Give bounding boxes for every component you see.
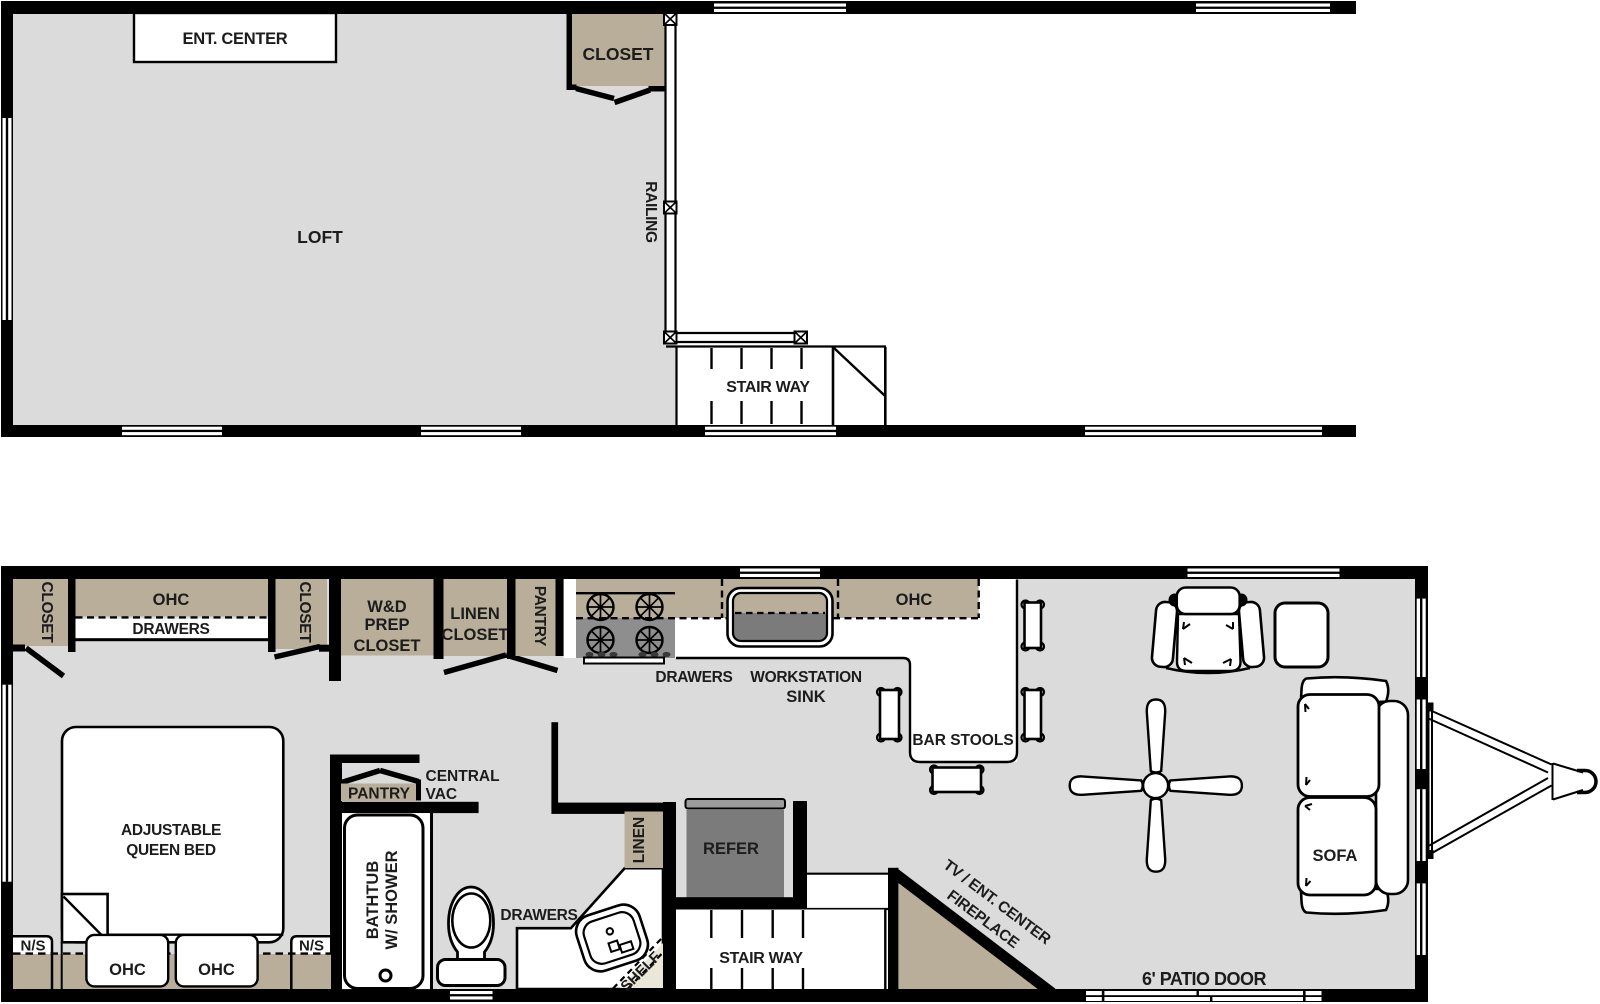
- svg-text:CENTRAL: CENTRAL: [426, 768, 500, 785]
- svg-text:RAILING: RAILING: [642, 181, 659, 243]
- svg-text:CLOSET: CLOSET: [442, 626, 509, 644]
- svg-text:STAIR WAY: STAIR WAY: [726, 379, 810, 396]
- svg-text:WORKSTATION: WORKSTATION: [750, 669, 862, 686]
- svg-text:CLOSET: CLOSET: [296, 581, 313, 643]
- svg-text:SINK: SINK: [786, 688, 826, 706]
- svg-text:OHC: OHC: [198, 961, 235, 979]
- svg-text:LINEN: LINEN: [450, 605, 500, 623]
- svg-text:DRAWERS: DRAWERS: [500, 907, 577, 924]
- svg-text:PANTRY: PANTRY: [531, 586, 548, 647]
- svg-text:LINEN: LINEN: [631, 817, 648, 864]
- svg-text:N/S: N/S: [299, 938, 324, 955]
- svg-text:CLOSET: CLOSET: [354, 637, 421, 655]
- svg-text:DRAWERS: DRAWERS: [655, 669, 732, 686]
- svg-text:SOFA: SOFA: [1313, 847, 1358, 865]
- svg-text:PANTRY: PANTRY: [348, 786, 411, 803]
- svg-text:OHC: OHC: [153, 591, 190, 609]
- svg-text:QUEEN BED: QUEEN BED: [126, 842, 216, 859]
- svg-text:LOFT: LOFT: [297, 227, 343, 247]
- svg-text:ENT. CENTER: ENT. CENTER: [183, 30, 288, 48]
- svg-text:W&D: W&D: [367, 598, 406, 616]
- svg-text:ADJUSTABLE: ADJUSTABLE: [121, 822, 221, 839]
- svg-text:VAC: VAC: [426, 786, 458, 803]
- svg-text:CLOSET: CLOSET: [583, 44, 654, 64]
- svg-text:BATHTUB: BATHTUB: [364, 861, 382, 940]
- svg-text:PREP: PREP: [365, 616, 410, 634]
- svg-text:STAIR WAY: STAIR WAY: [719, 950, 803, 967]
- svg-text:BAR STOOLS: BAR STOOLS: [912, 732, 1013, 749]
- svg-text:N/S: N/S: [20, 938, 45, 955]
- svg-text:DRAWERS: DRAWERS: [132, 621, 209, 638]
- svg-text:REFER: REFER: [703, 840, 759, 858]
- svg-text:OHC: OHC: [896, 591, 933, 609]
- svg-text:W/ SHOWER: W/ SHOWER: [383, 850, 401, 949]
- svg-text:6' PATIO DOOR: 6' PATIO DOOR: [1142, 969, 1267, 989]
- svg-text:OHC: OHC: [109, 961, 146, 979]
- svg-text:CLOSET: CLOSET: [38, 581, 55, 643]
